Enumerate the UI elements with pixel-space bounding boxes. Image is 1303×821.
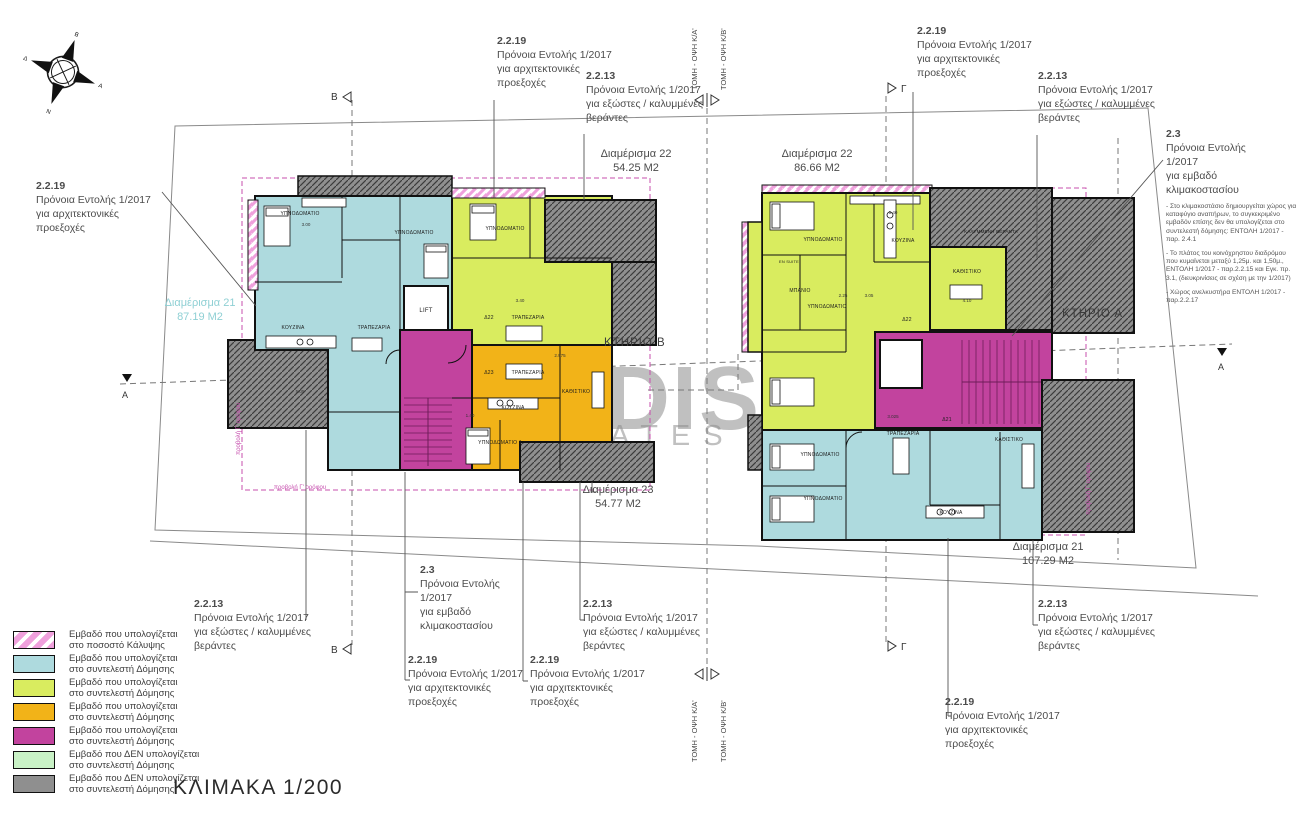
veranda-label: ΚΑΛΥΜΜΕΝΗ ΒΕΡΑΝΤΑ (964, 229, 1018, 234)
note-paragraph: - Στο κλιμακοστάσιο δημιουργείται χώρος … (1166, 203, 1298, 244)
annotation-2219-bottom-mid2: 2.2.19 Πρόνοια Εντολής 1/2017 για αρχιτε… (530, 653, 645, 709)
annotation-line: για αρχιτεκτονικές (945, 723, 1060, 737)
room-label: ΚΟΥΖΙΝΑ (501, 405, 524, 411)
annotation-code: 2.2.13 (194, 597, 311, 611)
annotation-line: προεξοχές (530, 695, 645, 709)
annotation-2213-bottom-left: 2.2.13 Πρόνοια Εντολής 1/2017 για εξώστε… (194, 597, 311, 653)
annotation-2213-bottom-mid: 2.2.13 Πρόνοια Εντολής 1/2017 για εξώστε… (583, 597, 700, 653)
room-label: ΤΡΑΠΕΖΑΡΙΑ (887, 431, 920, 437)
annotation-code: 2.3 (1166, 127, 1298, 141)
annotation-2219-top-right: 2.2.19 Πρόνοια Εντολής 1/2017 για αρχιτε… (917, 24, 1032, 80)
annotation-line: βεράντες (1038, 111, 1155, 125)
legend-row-teal: Εμβαδό που υπολογίζεται στο συντελεστή Δ… (13, 652, 199, 676)
marker-a-left: Α (122, 390, 128, 400)
annotation-line: Πρόνοια Εντολής 1/2017 (1038, 611, 1155, 625)
annotation-2213-top-right: 2.2.13 Πρόνοια Εντολής 1/2017 για εξώστε… (1038, 69, 1155, 125)
annotation-23-bottom: 2.3 Πρόνοια Εντολής 1/2017 για εμβαδό κλ… (420, 563, 500, 633)
room-label: ΜΠΑΝΙΟ (789, 288, 810, 294)
apartment-name: Διαμέρισμα 21 (140, 296, 260, 310)
apartment-name: Διαμέρισμα 23 (558, 483, 678, 497)
scale-label: ΚΛΙΜΑΚΑ 1/200 (173, 776, 343, 800)
projection-label: προβολή Γ' ορόφου (1085, 463, 1092, 515)
annotation-code: 2.2.13 (1038, 69, 1155, 83)
room-label: ΚΟΥΖΙΝΑ (939, 510, 962, 516)
projection-label: προβολή Γ' ορόφου (274, 484, 326, 491)
annotation-line: Πρόνοια Εντολής 1/2017 (36, 193, 151, 207)
room-label: ΚΑΘΙΣΤΙΚΟ (562, 389, 590, 395)
annotation-line: βεράντες (586, 111, 703, 125)
annotation-line: βεράντες (194, 639, 311, 653)
apartment-area: 54.77 M2 (558, 497, 678, 511)
annotation-line: Πρόνοια Εντολής 1/2017 (408, 667, 523, 681)
compass-rose: Β Α Ν Δ (8, 18, 117, 129)
annotation-line: Πρόνοια Εντολής 1/2017 (583, 611, 700, 625)
apartment-name: Διαμέρισμα 22 (576, 147, 696, 161)
annotation-code: 2.2.19 (408, 653, 523, 667)
annotation-line: Πρόνοια Εντολής 1/2017 (917, 38, 1032, 52)
legend-line: Εμβαδό που υπολογίζεται (69, 629, 178, 640)
apartment-area: 86.66 M2 (757, 161, 877, 175)
legend-row-orange: Εμβαδό που υπολογίζεται στο συντελεστή Δ… (13, 700, 199, 724)
legend-line: στο ποσοστό Κάλυψης (69, 640, 178, 651)
annotation-line: κλιμακοστασίου (420, 619, 500, 633)
lift-label: LIFT (419, 308, 432, 314)
annotation-line: Πρόνοια Εντολής 1/2017 (1038, 83, 1155, 97)
room-label: Δ21 (942, 417, 952, 423)
apartment-label-a22: Διαμέρισμα 22 86.66 M2 (757, 147, 877, 175)
room-label: ΤΡΑΠΕΖΑΡΙΑ (512, 315, 545, 321)
tomi-kb-bottom: ΤΟΜΗ - ΟΨΗ Κ/Β' (719, 700, 728, 762)
dim-label: 5.40 (889, 210, 898, 215)
legend-label: Εμβαδό που υπολογίζεται στο συντελεστή Δ… (69, 653, 178, 675)
annotation-line: προεξοχές (945, 737, 1060, 751)
annotation-code: 2.2.13 (583, 597, 700, 611)
note-paragraph: - Το πλάτος του κοινόχρηστου διαδρόμου π… (1166, 250, 1298, 283)
legend-label: Εμβαδό που υπολογίζεται στο συντελεστή Δ… (69, 725, 178, 747)
room-label: ΥΠΝΟΔΩΜΑΤΙΟ (803, 237, 842, 243)
room-label: Δ23 (484, 370, 494, 376)
annotation-line: προεξοχές (917, 66, 1032, 80)
tomi-glyph-bottom (695, 667, 719, 681)
annotation-line: Πρόνοια Εντολής (1166, 141, 1298, 155)
legend-swatch-lime (13, 679, 55, 697)
apartment-area: 87.19 M2 (140, 310, 260, 324)
legend-line: Εμβαδό που υπολογίζεται (69, 677, 178, 688)
compass-w: Δ (22, 56, 28, 63)
annotation-line: Πρόνοια Εντολής 1/2017 (194, 611, 311, 625)
legend-line: Εμβαδό που υπολογίζεται (69, 701, 178, 712)
annotation-line: προεξοχές (36, 221, 151, 235)
annotation-code: 2.2.19 (497, 34, 612, 48)
room-label: ΚΑΘΙΣΤΙΚΟ (995, 437, 1023, 443)
room-label: ΥΠΝΟΔΩΜΑΤΙΟ (280, 211, 319, 217)
projection-label: προβολή Γ' ορόφου (235, 403, 242, 455)
annotation-23-right: 2.3 Πρόνοια Εντολής 1/2017 για εμβαδό κλ… (1166, 127, 1298, 311)
legend-line: Εμβαδό που υπολογίζεται (69, 653, 178, 664)
annotation-2213-bottom-right: 2.2.13 Πρόνοια Εντολής 1/2017 για εξώστε… (1038, 597, 1155, 653)
dim-label: 3.05 (865, 293, 874, 298)
annotation-line: για αρχιτεκτονικές (36, 207, 151, 221)
annotation-2213-top-mid: 2.2.13 Πρόνοια Εντολής 1/2017 για εξώστε… (586, 69, 703, 125)
marker-a-right: Α (1218, 362, 1224, 372)
room-label: Δ22 (902, 317, 912, 323)
annotation-line: βεράντες (1038, 639, 1155, 653)
compass-n: Β (73, 32, 79, 39)
legend-row-gray: Εμβαδό που ΔΕΝ υπολογίζεται στο συντελεσ… (13, 772, 199, 796)
legend-line: στο συντελεστή Δόμησης (69, 736, 178, 747)
annotation-line: για εξώστες / καλυμμένες (583, 625, 700, 639)
annotation-line: Πρόνοια Εντολής (420, 577, 500, 591)
annotation-line: 1/2017 (420, 591, 500, 605)
legend-label: Εμβαδό που υπολογίζεται στο ποσοστό Κάλυ… (69, 629, 178, 651)
annotation-line: για εξώστες / καλυμμένες (1038, 97, 1155, 111)
room-label: EN SUITE (779, 259, 799, 264)
annotation-line: για εμβαδό (420, 605, 500, 619)
dim-label: 3.40 (516, 298, 525, 303)
dim-label: 3.00 (302, 222, 311, 227)
room-label: ΤΡΑΠΕΖΑΡΙΑ (512, 370, 545, 376)
legend-row-magenta: Εμβαδό που υπολογίζεται στο συντελεστή Δ… (13, 724, 199, 748)
room-label: ΚΟΥΖΙΝΑ (891, 238, 914, 244)
room-label: ΚΑΘΙΣΤΙΚΟ (953, 269, 981, 275)
building-a-plan (742, 185, 1134, 540)
legend: Εμβαδό που υπολογίζεται στο ποσοστό Κάλυ… (13, 628, 199, 796)
dim-label: 2.25 (839, 293, 848, 298)
room-label: ΥΠΝΟΔΩΜΑΤΙΟ (394, 230, 433, 236)
apartment-label-b22: Διαμέρισμα 22 54.25 M2 (576, 147, 696, 175)
legend-line: στο συντελεστή Δόμησης (69, 688, 178, 699)
annotation-line: για εμβαδό (1166, 169, 1298, 183)
legend-label: Εμβαδό που υπολογίζεται στο συντελεστή Δ… (69, 701, 178, 723)
annotation-line: για αρχιτεκτονικές (530, 681, 645, 695)
legend-swatch-magenta (13, 727, 55, 745)
legend-swatch-lightgreen (13, 751, 55, 769)
annotation-line: για εξώστες / καλυμμένες (586, 97, 703, 111)
floor-plan-canvas: NDIS ATES (0, 0, 1303, 821)
legend-label: Εμβαδό που ΔΕΝ υπολογίζεται στο συντελεσ… (69, 749, 199, 771)
room-label: ΥΠΝΟΔΩΜΑΤΙΟ (800, 452, 839, 458)
legend-swatch-gray (13, 775, 55, 793)
room-label: ΚΟΥΖΙΝΑ (281, 325, 304, 331)
legend-row-lime: Εμβαδό που υπολογίζεται στο συντελεστή Δ… (13, 676, 199, 700)
dim-label: 3.025 (887, 414, 899, 419)
annotation-2219-left: 2.2.19 Πρόνοια Εντολής 1/2017 για αρχιτε… (36, 179, 151, 235)
legend-line: στο συντελεστή Δόμησης (69, 760, 199, 771)
tomi-ka-bottom: ΤΟΜΗ - ΟΨΗ Κ/Α' (690, 700, 699, 762)
annotation-23-notes: - Στο κλιμακοστάσιο δημιουργείται χώρος … (1166, 203, 1298, 305)
legend-swatch-teal (13, 655, 55, 673)
apartment-name: Διαμέρισμα 21 (983, 540, 1113, 554)
annotation-line: για εξώστες / καλυμμένες (194, 625, 311, 639)
annotation-line: για εξώστες / καλυμμένες (1038, 625, 1155, 639)
dim-label: 2.975 (554, 353, 566, 358)
annotation-line: Πρόνοια Εντολής 1/2017 (530, 667, 645, 681)
room-label: ΥΠΝΟΔΩΜΑΤΙΟ (803, 496, 842, 502)
note-paragraph: - Χώρος ανελκυστήρα ΕΝΤΟΛΗ 1/2017 - παρ.… (1166, 289, 1298, 305)
annotation-code: 2.2.19 (945, 695, 1060, 709)
room-label: ΤΡΑΠΕΖΑΡΙΑ (358, 325, 391, 331)
annotation-code: 2.2.13 (1038, 597, 1155, 611)
legend-swatch-pink-hatch (13, 631, 55, 649)
tomi-kb-top: ΤΟΜΗ - ΟΨΗ Κ/Β' (719, 28, 728, 90)
dim-label: 4.10 (963, 298, 972, 303)
compass-e: Α (97, 83, 103, 90)
dim-label: 1.40 (466, 413, 475, 418)
apartment-label-b21: Διαμέρισμα 21 87.19 M2 (140, 296, 260, 324)
annotation-2219-bottom-right: 2.2.19 Πρόνοια Εντολής 1/2017 για αρχιτε… (945, 695, 1060, 751)
apartment-area: 54.25 M2 (576, 161, 696, 175)
annotation-line: Πρόνοια Εντολής 1/2017 (497, 48, 612, 62)
annotation-code: 2.2.19 (917, 24, 1032, 38)
building-a-title: ΚΤΗΡΙΟ Α (1062, 308, 1123, 320)
annotation-line: Πρόνοια Εντολής 1/2017 (586, 83, 703, 97)
annotation-code: 2.2.19 (36, 179, 151, 193)
annotation-line: για αρχιτεκτονικές (408, 681, 523, 695)
annotation-line: βεράντες (583, 639, 700, 653)
marker-b-top: Β (331, 92, 338, 103)
compass-s: Ν (45, 109, 51, 116)
annotation-code: 2.3 (420, 563, 500, 577)
apartment-name: Διαμέρισμα 22 (757, 147, 877, 161)
annotation-code: 2.2.13 (586, 69, 703, 83)
apartment-area: 107.29 M2 (983, 554, 1113, 568)
annotation-code: 2.2.19 (530, 653, 645, 667)
room-label: ΥΠΝΟΔΩΜΑΤΙΟ 1 (478, 440, 522, 446)
building-b-title: ΚΤΗΡΙΟ Β (604, 337, 666, 349)
annotation-2219-bottom-mid1: 2.2.19 Πρόνοια Εντολής 1/2017 για αρχιτε… (408, 653, 523, 709)
lift-label: LIFT (894, 362, 907, 368)
legend-swatch-orange (13, 703, 55, 721)
annotation-line: προεξοχές (408, 695, 523, 709)
annotation-line: Πρόνοια Εντολής 1/2017 (945, 709, 1060, 723)
legend-line: στο συντελεστή Δόμησης (69, 712, 178, 723)
marker-g-top: Γ (901, 84, 907, 95)
legend-line: Εμβαδό που υπολογίζεται (69, 725, 178, 736)
apartment-label-b23: Διαμέρισμα 23 54.77 M2 (558, 483, 678, 511)
annotation-line: για αρχιτεκτονικές (917, 52, 1032, 66)
legend-row-lightgreen: Εμβαδό που ΔΕΝ υπολογίζεται στο συντελεσ… (13, 748, 199, 772)
room-label: Δ22 (484, 315, 494, 321)
legend-line: στο συντελεστή Δόμησης (69, 664, 178, 675)
legend-row-coverage: Εμβαδό που υπολογίζεται στο ποσοστό Κάλυ… (13, 628, 199, 652)
marker-g-bottom: Γ (901, 642, 907, 653)
legend-line: Εμβαδό που ΔΕΝ υπολογίζεται (69, 749, 199, 760)
room-label: ΥΠΝΟΔΩΜΑΤΙΟ (485, 226, 524, 232)
apartment-label-a21: Διαμέρισμα 21 107.29 M2 (983, 540, 1113, 568)
annotation-line: 1/2017 (1166, 155, 1298, 169)
legend-label: Εμβαδό που υπολογίζεται στο συντελεστή Δ… (69, 677, 178, 699)
dim-label: 5.05 (296, 389, 305, 394)
annotation-line: κλιμακοστασίου (1166, 183, 1298, 197)
room-label: ΥΠΝΟΔΩΜΑΤΙΟ (807, 304, 846, 310)
marker-b-bottom: Β (331, 645, 338, 656)
